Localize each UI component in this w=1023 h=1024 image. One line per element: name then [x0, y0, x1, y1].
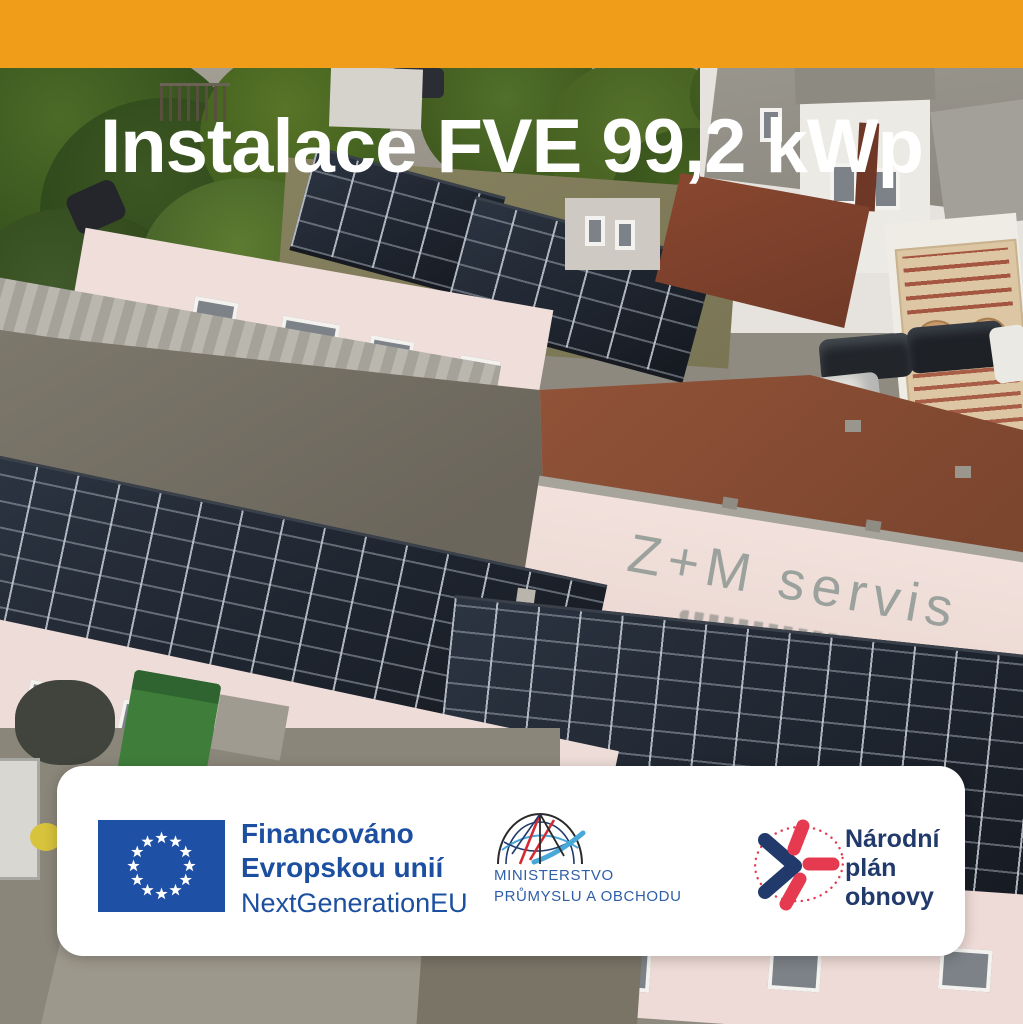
- npo-text-line1: Národní: [845, 826, 939, 853]
- funding-banner: Financováno Evropskou unií NextGeneratio…: [57, 766, 965, 956]
- debris-pile: [15, 680, 115, 765]
- steps: [211, 694, 289, 760]
- roof: [794, 68, 935, 104]
- building: [565, 198, 660, 270]
- roof-vent: [955, 466, 971, 478]
- roof-vent: [865, 519, 882, 532]
- npo-logo-icon: [751, 816, 851, 916]
- ministry-globe-icon: [494, 810, 586, 866]
- poster: Z+M servis: [0, 0, 1023, 1024]
- ministry-text-line2: PRŮMYSLU A OBCHODU: [494, 888, 682, 906]
- top-accent-bar: [0, 0, 1023, 68]
- npo-text-line2: plán: [845, 855, 896, 882]
- npo-text-line3: obnovy: [845, 884, 934, 911]
- eu-text-line3: NextGenerationEU: [241, 888, 468, 918]
- eu-text-line1: Financováno: [241, 819, 414, 849]
- trailer: [0, 758, 40, 880]
- ministry-text-line1: MINISTERSTVO: [494, 867, 614, 885]
- eu-text-line2: Evropskou unií: [241, 853, 443, 883]
- roof-vent: [845, 420, 861, 432]
- billboard-text: [902, 248, 1013, 315]
- window: [585, 216, 605, 246]
- eu-flag-icon: [98, 820, 225, 912]
- window: [615, 220, 635, 250]
- roof-vent: [722, 497, 739, 510]
- headline: Instalace FVE 99,2 kWp: [0, 104, 1023, 189]
